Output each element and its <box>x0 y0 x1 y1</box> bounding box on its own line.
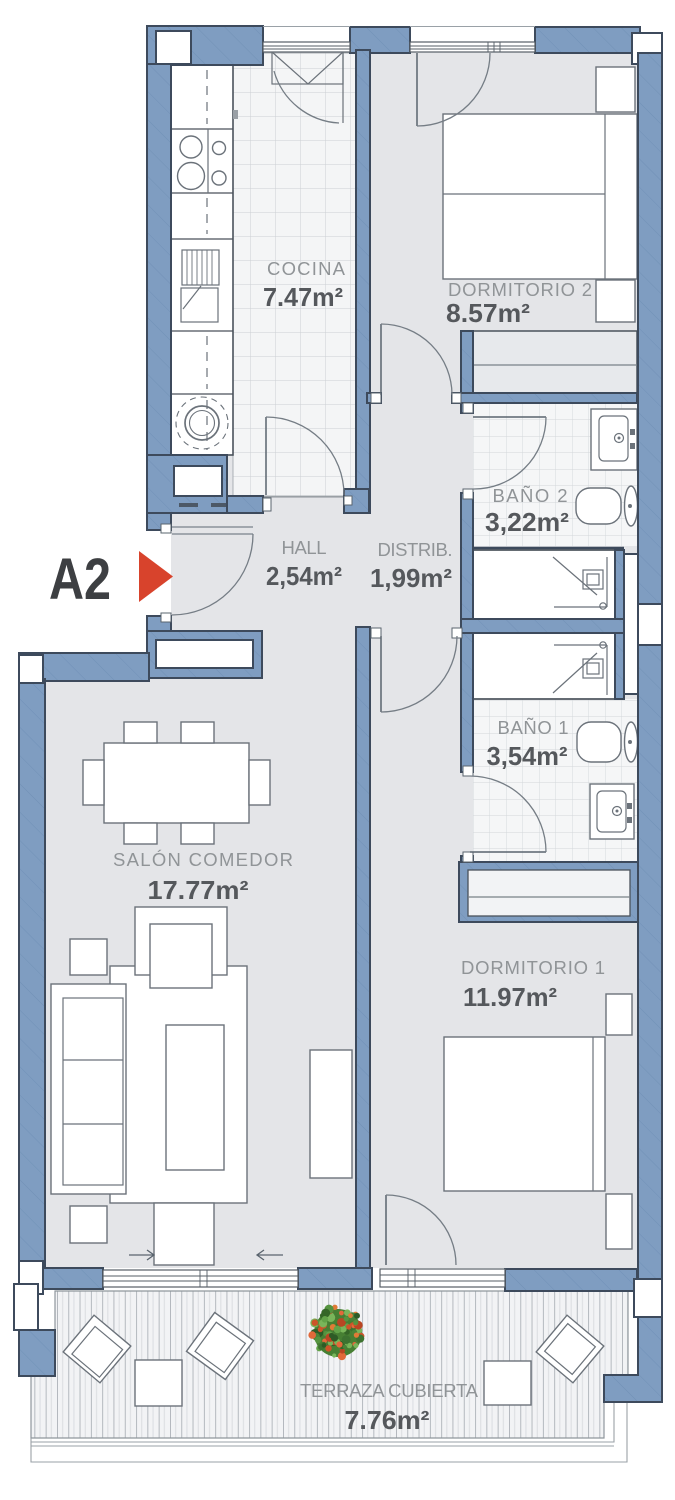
svg-text:3,54m²: 3,54m² <box>487 741 568 771</box>
svg-text:A2: A2 <box>49 547 111 612</box>
svg-text:1,99m²: 1,99m² <box>370 563 452 593</box>
svg-text:DISTRIB.: DISTRIB. <box>378 539 453 560</box>
svg-text:8.57m²: 8.57m² <box>446 298 530 328</box>
svg-text:7.76m²: 7.76m² <box>345 1405 430 1435</box>
svg-text:SALÓN COMEDOR: SALÓN COMEDOR <box>113 849 293 870</box>
svg-text:DORMITORIO 1: DORMITORIO 1 <box>461 957 605 978</box>
svg-text:HALL: HALL <box>282 537 327 558</box>
svg-text:DORMITORIO 2: DORMITORIO 2 <box>448 279 592 300</box>
svg-text:COCINA: COCINA <box>267 258 346 279</box>
svg-text:BAÑO 1: BAÑO 1 <box>498 717 569 738</box>
svg-text:11.97m²: 11.97m² <box>463 982 557 1012</box>
svg-text:TERRAZA CUBIERTA: TERRAZA CUBIERTA <box>300 1380 479 1401</box>
svg-text:3,22m²: 3,22m² <box>485 507 569 537</box>
svg-text:7.47m²: 7.47m² <box>263 282 343 312</box>
svg-text:17.77m²: 17.77m² <box>148 875 249 905</box>
svg-text:2,54m²: 2,54m² <box>266 561 342 591</box>
svg-text:BAÑO 2: BAÑO 2 <box>493 485 568 506</box>
